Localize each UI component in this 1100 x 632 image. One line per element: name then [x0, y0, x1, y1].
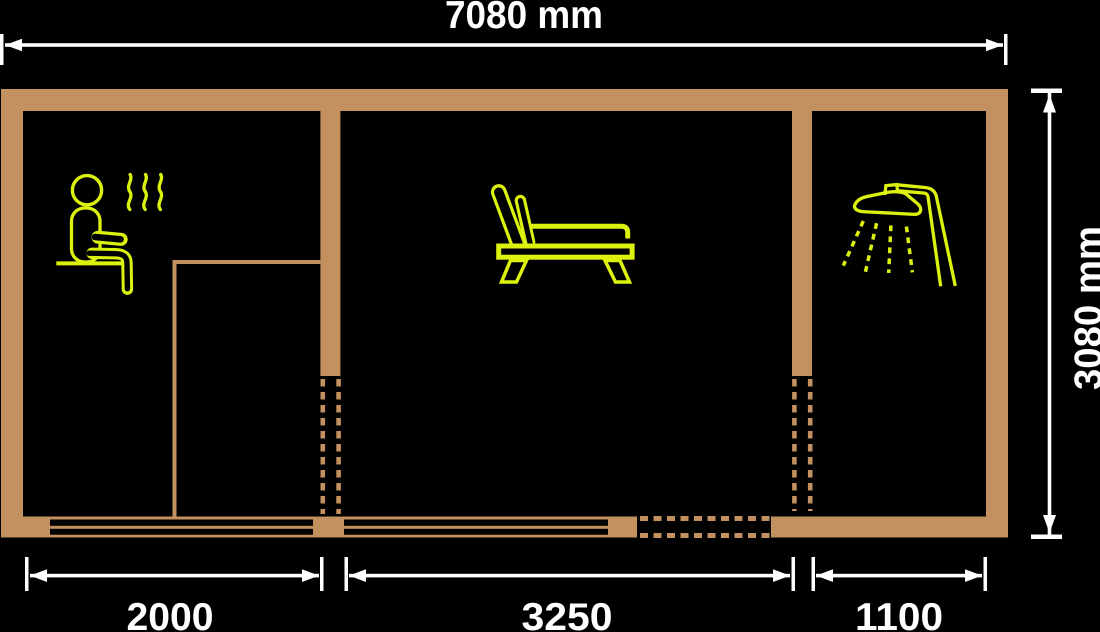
- svg-text:2000: 2000: [127, 596, 214, 632]
- svg-text:3080 mm: 3080 mm: [1068, 226, 1100, 390]
- svg-text:1100: 1100: [855, 596, 943, 632]
- svg-text:3250: 3250: [522, 596, 613, 632]
- svg-text:7080 mm: 7080 mm: [445, 0, 603, 37]
